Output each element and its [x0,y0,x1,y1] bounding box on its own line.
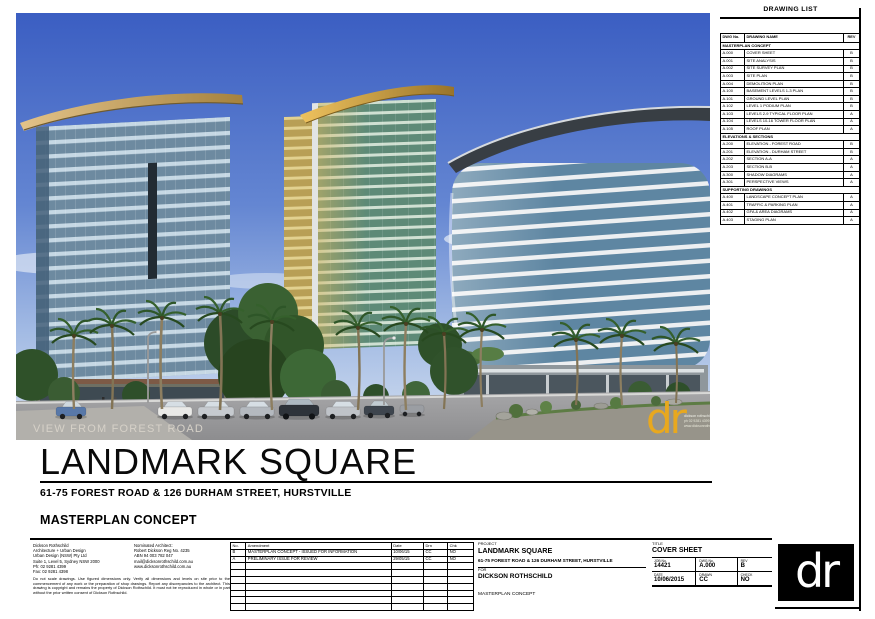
revision-letter: B [741,563,770,570]
masterplan-concept-label: MASTERPLAN CONCEPT [40,513,197,527]
architect-block: Dickson RothschildArchitecture + Urban D… [33,543,230,596]
project-address-small: 61-75 FOREST ROAD & 126 DURHAM STREET, H… [478,558,646,564]
text-line: Fax: 02 9281 4398 [33,569,128,574]
sheet-title-column: TITLE COVER SHEET [652,542,772,555]
drawing-list-row: A.103LEVELS 2-9 TYPICAL FLOOR PLANA [721,110,860,118]
project-column: PROJECT LANDMARK SQUARE 61-75 FOREST ROA… [478,542,646,597]
drawing-list-row: A.203SECTION B-BA [721,164,860,172]
drawing-list-row: A.102LEVEL 1 PODIUM PLANB [721,103,860,111]
drawing-list-row: A.001SITE ANALYSISB [721,57,860,65]
drawing-list-row: A.000COVER SHEETB [721,50,860,58]
middle-tower [284,85,454,349]
title-rule [40,481,712,483]
drawing-list-table: DWG No. DRAWING NAME REV MASTERPLAN CONC… [720,33,860,225]
drawing-list-row: A.101GROUND LEVEL PLANB [721,95,860,103]
revision-row [231,563,474,570]
revision-table-body: BMASTERPLAN CONCEPT - ISSUED FOR INFORMA… [231,549,474,610]
drawing-list-section: SUPPORTING DRAWINGS [721,186,860,194]
dr-logo: dr [778,544,854,601]
drawing-list-row: A.003SITE PLANB [721,73,860,81]
client-name: DICKSON ROTHSCHILD [478,573,646,580]
svg-text:dickson rothschild: dickson rothschild [684,414,710,418]
dr-logo-text: dr [795,548,837,594]
svg-text:www.dicksonrothschild.com.au: www.dicksonrothschild.com.au [684,424,710,428]
drawing-list-row: A.004DEMOLITION PLANB [721,80,860,88]
revision-header: No. Amendment Date Drn Chk [231,543,474,550]
drawing-list-row: A.401TRAFFIC & PARKING PLANA [721,201,860,209]
drawing-list-row: A.301PERSPECTIVE VIEWSA [721,179,860,187]
text-line: www.dicksonrothschild.com.au [134,564,229,569]
issue-date: 10/06/2015 [654,577,693,584]
drawing-list-row: A.200ELEVATION - FOREST ROADB [721,141,860,149]
drawing-list-body: MASTERPLAN CONCEPTA.000COVER SHEETBA.001… [721,42,860,224]
drawing-list-row: A.201ELEVATION - DURHAM STREETB [721,148,860,156]
drawing-list-row: A.402GFA & AREA DIAGRAMSA [721,209,860,217]
project-address: 61-75 FOREST ROAD & 126 DURHAM STREET, H… [40,487,351,499]
drawing-number: A.000 [699,563,734,570]
drawing-list-row: A.202SECTION A-AA [721,156,860,164]
drawn-by: CC [699,577,734,584]
revision-row [231,604,474,611]
disclaimer-text: Do not scale drawings. Use figured dimen… [33,577,230,595]
drawing-list-row: A.105ROOF PLANA [721,126,860,134]
sheet-title: COVER SHEET [652,547,772,555]
drawing-list-row: A.300SHADOW DIAGRAMSA [721,171,860,179]
architect-contact: Dickson RothschildArchitecture + Urban D… [33,543,128,574]
revision-row [231,597,474,604]
revision-row [231,570,474,577]
drawing-list-header: DWG No. DRAWING NAME REV [721,34,860,43]
architect-registration: Nominated Architect:Robert Dickson Reg N… [134,543,229,574]
logo-underline [775,607,861,609]
drawing-list-rule [720,17,860,19]
drawing-list-row: A.104LEVELS 10-16 TOWER FLOOR PLANA [721,118,860,126]
drawing-list-heading: DRAWING LIST [718,6,863,13]
revision-row [231,583,474,590]
drawing-list-row: A.002SITE SURVEY PLANB [721,65,860,73]
revision-row: APRELIMINARY ISSUE FOR REVIEW29/05/15CCN… [231,556,474,563]
field-grid: JOB No. 14421 DWG No. A.000 REV B DATE 1… [652,557,772,587]
stage-name: MASTERPLAN CONCEPT [478,592,646,597]
checked-by: NO [741,577,770,584]
drawing-list-section: ELEVATIONS & SECTIONS [721,133,860,141]
revision-row [231,576,474,583]
dl-col-name: DRAWING NAME [745,34,844,43]
drawing-list-section: MASTERPLAN CONCEPT [721,42,860,50]
job-number: 14421 [654,563,693,570]
svg-text:dr: dr [646,394,688,440]
dl-col-rev: REV [844,34,860,43]
svg-text:ph 02 9281 4399: ph 02 9281 4399 [684,419,710,423]
project-name: LANDMARK SQUARE [478,547,646,555]
page-title: LANDMARK SQUARE [40,443,417,481]
drawing-list-row: A.400LANDSCAPE CONCEPT PLANA [721,194,860,202]
drawing-list-row: A.403STAGING PLANA [721,217,860,225]
dl-col-no: DWG No. [721,34,745,43]
revision-row [231,590,474,597]
revision-row: BMASTERPLAN CONCEPT - ISSUED FOR INFORMA… [231,549,474,556]
photo-caption: VIEW FROM FOREST ROAD [33,423,204,435]
titleblock-top-rule [30,538,772,540]
revision-table: No. Amendment Date Drn Chk BMASTERPLAN C… [230,542,474,611]
sheet-right-border [859,8,861,611]
drawing-list-row: A.100BASEMENT LEVELS 1-3 PLANB [721,88,860,96]
rendering-photo: VIEW FROM FOREST ROAD dr dickson rothsch… [16,13,710,440]
